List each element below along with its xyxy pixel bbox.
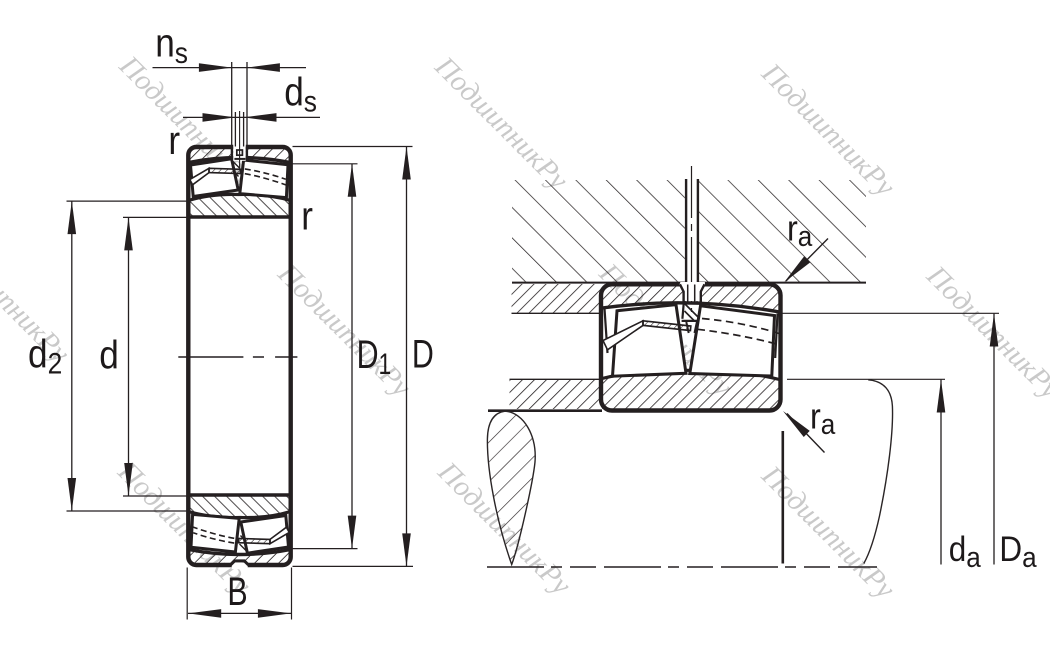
svg-text:d: d (99, 332, 119, 377)
svg-text:D: D (412, 332, 434, 377)
svg-text:r: r (168, 118, 180, 163)
svg-text:r: r (301, 193, 313, 238)
svg-text:B: B (227, 569, 247, 614)
